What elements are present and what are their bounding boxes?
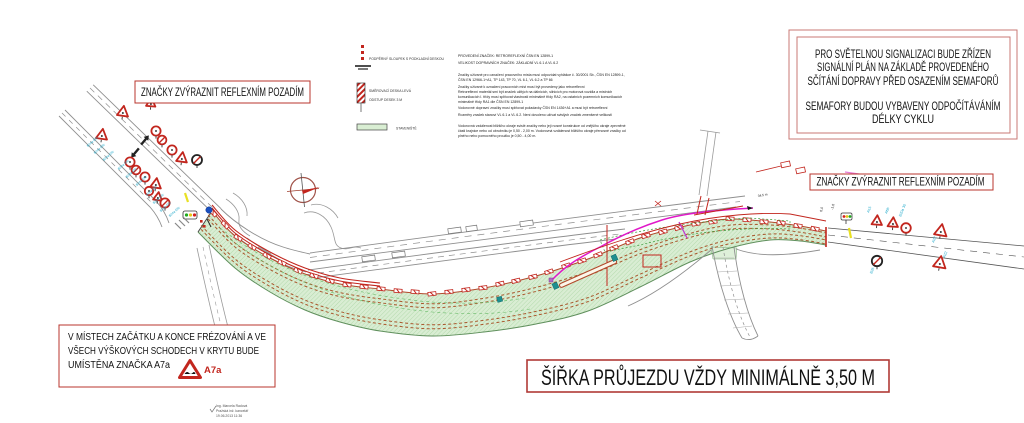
svg-text:Pražská inž. kancelář: Pražská inž. kancelář — [216, 409, 249, 413]
svg-text:ČSN EN 12966-1+A1, TP 143, TP: ČSN EN 12966-1+A1, TP 143, TP 70, VL 6.1… — [458, 77, 553, 82]
svg-text:STAVENIŠTĚ: STAVENIŠTĚ — [396, 126, 417, 131]
svg-text:Retroreflexní materiál smí být: Retroreflexní materiál smí být značek už… — [458, 90, 612, 94]
svg-text:VELIKOST DOPRAVNÍCH ZNAČEK: ZÁ: VELIKOST DOPRAVNÍCH ZNAČEK: ZÁKLADNÍ VL … — [458, 60, 558, 65]
svg-text:ŠÍŘKA PRŮJEZDU VŽDY MINIMÁLNĚ: ŠÍŘKA PRŮJEZDU VŽDY MINIMÁLNĚ 3,50 M — [541, 365, 875, 390]
svg-text:části krajnice nebo od obrubní: části krajnice nebo od obrubníku je 0,50… — [458, 129, 626, 133]
svg-text:UMÍSTĚNA ZNAČKA A7a: UMÍSTĚNA ZNAČKA A7a — [68, 358, 170, 371]
svg-text:Rozměry značek stanoví VL 6.1: Rozměry značek stanoví VL 6.1 a VL 6.2. … — [458, 113, 612, 117]
svg-text:PROVEDENÍ ZNAČEK: RETROREFLEXN: PROVEDENÍ ZNAČEK: RETROREFLEXNÍ ČSN EN 1… — [458, 53, 553, 58]
svg-text:A7a: A7a — [204, 365, 222, 376]
svg-text:Značky užívané pro označení pr: Značky užívané pro označení pracovního m… — [458, 72, 625, 77]
svg-text:V MÍSTECH ZAČÁTKU A KONCE FRÉZ: V MÍSTECH ZAČÁTKU A KONCE FRÉZOVÁNÍ A VE — [68, 330, 266, 343]
svg-text:DÉLKY CYKLU: DÉLKY CYKLU — [872, 112, 934, 126]
svg-text:SMĚROVACÍ DESKA LEVÁ: SMĚROVACÍ DESKA LEVÁ — [369, 88, 412, 93]
svg-text:SČÍTÁNÍ DOPRAVY PŘED OSAZENÍM: SČÍTÁNÍ DOPRAVY PŘED OSAZENÍM SEMAFORŮ — [808, 74, 999, 88]
svg-text:PRO SVĚTELNOU SIGNALIZACI BUDE: PRO SVĚTELNOU SIGNALIZACI BUDE ZŘÍZEN — [815, 47, 991, 61]
svg-text:Vodorovné dopravní značky musí: Vodorovné dopravní značky musí splňovat … — [458, 105, 608, 110]
svg-text:ZNAČKY ZVÝRAZNIT REFLEXNÍM POZ: ZNAČKY ZVÝRAZNIT REFLEXNÍM POZADÍM — [141, 86, 304, 99]
svg-text:komunikacích I. třídy musí spl: komunikacích I. třídy musí splňovat vlas… — [458, 95, 622, 99]
svg-text:19.06.2013 11:36: 19.06.2013 11:36 — [216, 414, 242, 418]
svg-text:Vodorovná vzdálenost bližšího: Vodorovná vzdálenost bližšího okraje svi… — [458, 124, 626, 128]
svg-text:SIGNÁLNÍ PLÁN NA ZÁKLADĚ PROVE: SIGNÁLNÍ PLÁN NA ZÁKLADĚ PROVEDENÉHO — [817, 60, 989, 74]
svg-text:PODPĚRNÝ SLOUPEK S PODKLADNÍ D: PODPĚRNÝ SLOUPEK S PODKLADNÍ DESKOU — [369, 56, 445, 61]
svg-text:VŠECH VÝŠKOVÝCH SCHODECH V KRY: VŠECH VÝŠKOVÝCH SCHODECH V KRYTU BUDE — [68, 344, 259, 357]
svg-text:ODSTUP DESEK 3 M: ODSTUP DESEK 3 M — [369, 98, 402, 102]
svg-text:Značky užívané k označení prac: Značky užívané k označení pracovních mís… — [458, 85, 585, 89]
svg-text:Ing. Marcela Radová: Ing. Marcela Radová — [216, 404, 247, 408]
svg-text:plného nebo pomocného proužku: plného nebo pomocného proužku je 0,50 - … — [458, 134, 536, 138]
svg-text:minimálně třídy RA1 dle ČSN EN: minimálně třídy RA1 dle ČSN EN 12899-1 — [458, 99, 523, 104]
svg-text:ZNAČKY ZVÝRAZNIT REFLEXNÍM POZ: ZNAČKY ZVÝRAZNIT REFLEXNÍM POZADÍM — [817, 176, 985, 189]
svg-text:SEMAFORY BUDOU VYBAVENY ODPOČÍ: SEMAFORY BUDOU VYBAVENY ODPOČÍTÁVÁNÍM — [806, 99, 1001, 113]
